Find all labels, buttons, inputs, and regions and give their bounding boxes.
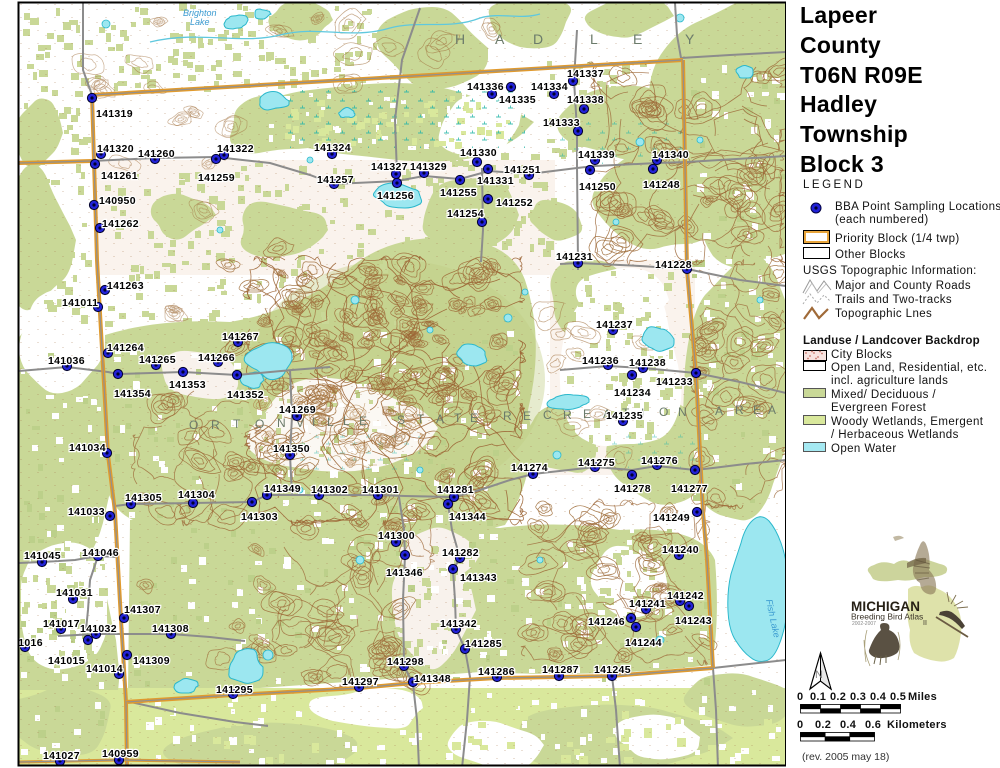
svg-text:141327: 141327	[371, 161, 408, 173]
svg-text:141281: 141281	[437, 484, 474, 496]
svg-text:141278: 141278	[614, 483, 651, 495]
svg-text:141331: 141331	[477, 175, 514, 187]
svg-text:141228: 141228	[655, 259, 692, 271]
svg-text:141269: 141269	[279, 404, 316, 416]
svg-text:141324: 141324	[314, 142, 351, 154]
svg-text:141322: 141322	[217, 143, 254, 155]
svg-text:O: O	[659, 405, 669, 419]
svg-text:C: C	[543, 408, 553, 422]
svg-text:141354: 141354	[114, 388, 151, 400]
svg-text:2002-2007: 2002-2007	[852, 621, 876, 627]
svg-text:141259: 141259	[198, 172, 235, 184]
svg-text:141295: 141295	[216, 684, 253, 696]
svg-text:141346: 141346	[386, 567, 423, 579]
svg-text:141342: 141342	[440, 618, 477, 630]
svg-text:141011: 141011	[62, 297, 98, 309]
svg-text:141285: 141285	[465, 638, 502, 650]
svg-text:141015: 141015	[48, 655, 85, 667]
svg-text:141309: 141309	[133, 655, 170, 667]
svg-text:141336: 141336	[467, 81, 504, 93]
svg-text:S: S	[397, 413, 406, 427]
svg-text:141248: 141248	[643, 179, 680, 191]
svg-text:141301: 141301	[362, 484, 399, 496]
svg-text:141231: 141231	[556, 251, 593, 263]
svg-text:R: R	[211, 418, 221, 432]
svg-text:141237: 141237	[596, 319, 633, 331]
svg-text:E: E	[359, 414, 368, 428]
svg-text:141350: 141350	[273, 443, 310, 455]
svg-text:141320: 141320	[97, 143, 134, 155]
svg-text:141329: 141329	[410, 161, 447, 173]
svg-text:L: L	[327, 415, 335, 429]
svg-text:E: E	[470, 411, 479, 425]
svg-text:T: T	[233, 417, 241, 431]
svg-text:141304: 141304	[178, 489, 215, 501]
svg-text:141302: 141302	[311, 484, 348, 496]
svg-text:E: E	[633, 31, 643, 47]
svg-text:141261: 141261	[101, 170, 138, 182]
svg-text:Breeding Bird Atlas: Breeding Bird Atlas	[851, 612, 923, 622]
svg-text:141242: 141242	[667, 590, 704, 602]
svg-text:141245: 141245	[594, 664, 631, 676]
svg-text:141274: 141274	[511, 462, 548, 474]
svg-text:141275: 141275	[578, 457, 615, 469]
svg-text:II: II	[923, 620, 927, 627]
svg-text:O: O	[255, 417, 265, 431]
svg-text:141034: 141034	[69, 442, 106, 454]
svg-text:141287: 141287	[542, 664, 579, 676]
svg-text:141282: 141282	[442, 547, 479, 559]
svg-text:A: A	[715, 404, 724, 418]
svg-text:141305: 141305	[125, 492, 162, 504]
svg-text:141244: 141244	[625, 637, 662, 649]
svg-text:Lake: Lake	[190, 17, 210, 27]
svg-text:141252: 141252	[496, 197, 533, 209]
svg-text:141335: 141335	[499, 94, 536, 106]
svg-text:141250: 141250	[579, 181, 616, 193]
svg-text:H: H	[455, 31, 466, 47]
svg-text:141353: 141353	[169, 379, 206, 391]
svg-text:141344: 141344	[449, 511, 486, 523]
svg-text:141027: 141027	[43, 750, 80, 762]
svg-text:L: L	[343, 414, 351, 428]
svg-text:141340: 141340	[652, 149, 689, 161]
svg-text:A: A	[495, 31, 505, 47]
svg-text:141298: 141298	[387, 656, 424, 668]
svg-text:141263: 141263	[107, 280, 144, 292]
svg-text:141308: 141308	[152, 623, 189, 635]
svg-text:141254: 141254	[447, 208, 484, 220]
svg-text:R: R	[563, 408, 573, 422]
svg-text:E: E	[583, 407, 592, 421]
svg-text:141234: 141234	[614, 387, 651, 399]
svg-text:141260: 141260	[138, 148, 175, 160]
svg-text:L: L	[590, 31, 599, 47]
svg-text:141334: 141334	[531, 81, 568, 93]
svg-text:O: O	[189, 418, 199, 432]
svg-text:A: A	[436, 412, 445, 426]
svg-text:141251: 141251	[504, 164, 541, 176]
svg-text:T: T	[454, 411, 462, 425]
svg-text:141352: 141352	[227, 389, 264, 401]
svg-text:141255: 141255	[440, 187, 477, 199]
svg-text:141249: 141249	[653, 512, 690, 524]
svg-text:141045: 141045	[24, 550, 61, 562]
svg-text:E: E	[523, 409, 532, 423]
svg-text:141343: 141343	[460, 572, 497, 584]
svg-text:141257: 141257	[317, 174, 354, 186]
svg-text:141238: 141238	[629, 357, 666, 369]
svg-text:141264: 141264	[107, 342, 144, 354]
svg-text:R: R	[503, 409, 513, 423]
svg-text:140950: 140950	[99, 195, 136, 207]
svg-text:141046: 141046	[82, 547, 119, 559]
svg-text:141348: 141348	[414, 673, 451, 685]
svg-text:141319: 141319	[96, 108, 133, 120]
svg-text:141338: 141338	[567, 94, 604, 106]
svg-text:141300: 141300	[378, 530, 415, 542]
svg-text:141233: 141233	[656, 376, 693, 388]
svg-text:141235: 141235	[606, 410, 643, 422]
svg-text:141277: 141277	[671, 483, 708, 495]
svg-text:141286: 141286	[478, 666, 515, 678]
svg-text:141266: 141266	[198, 352, 235, 364]
svg-text:141265: 141265	[139, 354, 176, 366]
svg-text:141256: 141256	[377, 190, 414, 202]
svg-text:141017: 141017	[43, 618, 80, 630]
svg-text:E: E	[753, 403, 762, 417]
svg-text:141014: 141014	[86, 663, 123, 675]
svg-text:141262: 141262	[102, 218, 139, 230]
svg-text:D: D	[533, 31, 544, 47]
svg-text:N: N	[277, 416, 287, 430]
svg-text:141241: 141241	[629, 598, 666, 610]
svg-text:141307: 141307	[124, 604, 161, 616]
svg-text:141337: 141337	[567, 68, 604, 80]
svg-text:141033: 141033	[68, 506, 105, 518]
svg-text:141031: 141031	[56, 587, 93, 599]
svg-text:141243: 141243	[675, 615, 712, 627]
svg-text:141236: 141236	[582, 355, 619, 367]
svg-text:141240: 141240	[662, 544, 699, 556]
svg-text:141333: 141333	[543, 117, 580, 129]
svg-text:A: A	[768, 403, 777, 417]
svg-text:141032: 141032	[80, 623, 117, 635]
svg-text:Y: Y	[685, 31, 695, 47]
svg-text:141349: 141349	[264, 483, 301, 495]
svg-text:141246: 141246	[588, 616, 625, 628]
svg-text:N: N	[678, 405, 688, 419]
svg-text:140959: 140959	[102, 748, 139, 760]
svg-text:141330: 141330	[460, 147, 497, 159]
svg-text:N: N	[815, 669, 823, 681]
svg-text:141339: 141339	[578, 149, 615, 161]
svg-text:141267: 141267	[222, 331, 259, 343]
svg-text:I: I	[312, 415, 316, 429]
svg-text:R: R	[735, 403, 745, 417]
svg-text:141297: 141297	[342, 676, 379, 688]
svg-text:T: T	[417, 412, 425, 426]
svg-text:141276: 141276	[641, 455, 678, 467]
svg-text:141303: 141303	[241, 511, 278, 523]
svg-text:141036: 141036	[48, 355, 85, 367]
